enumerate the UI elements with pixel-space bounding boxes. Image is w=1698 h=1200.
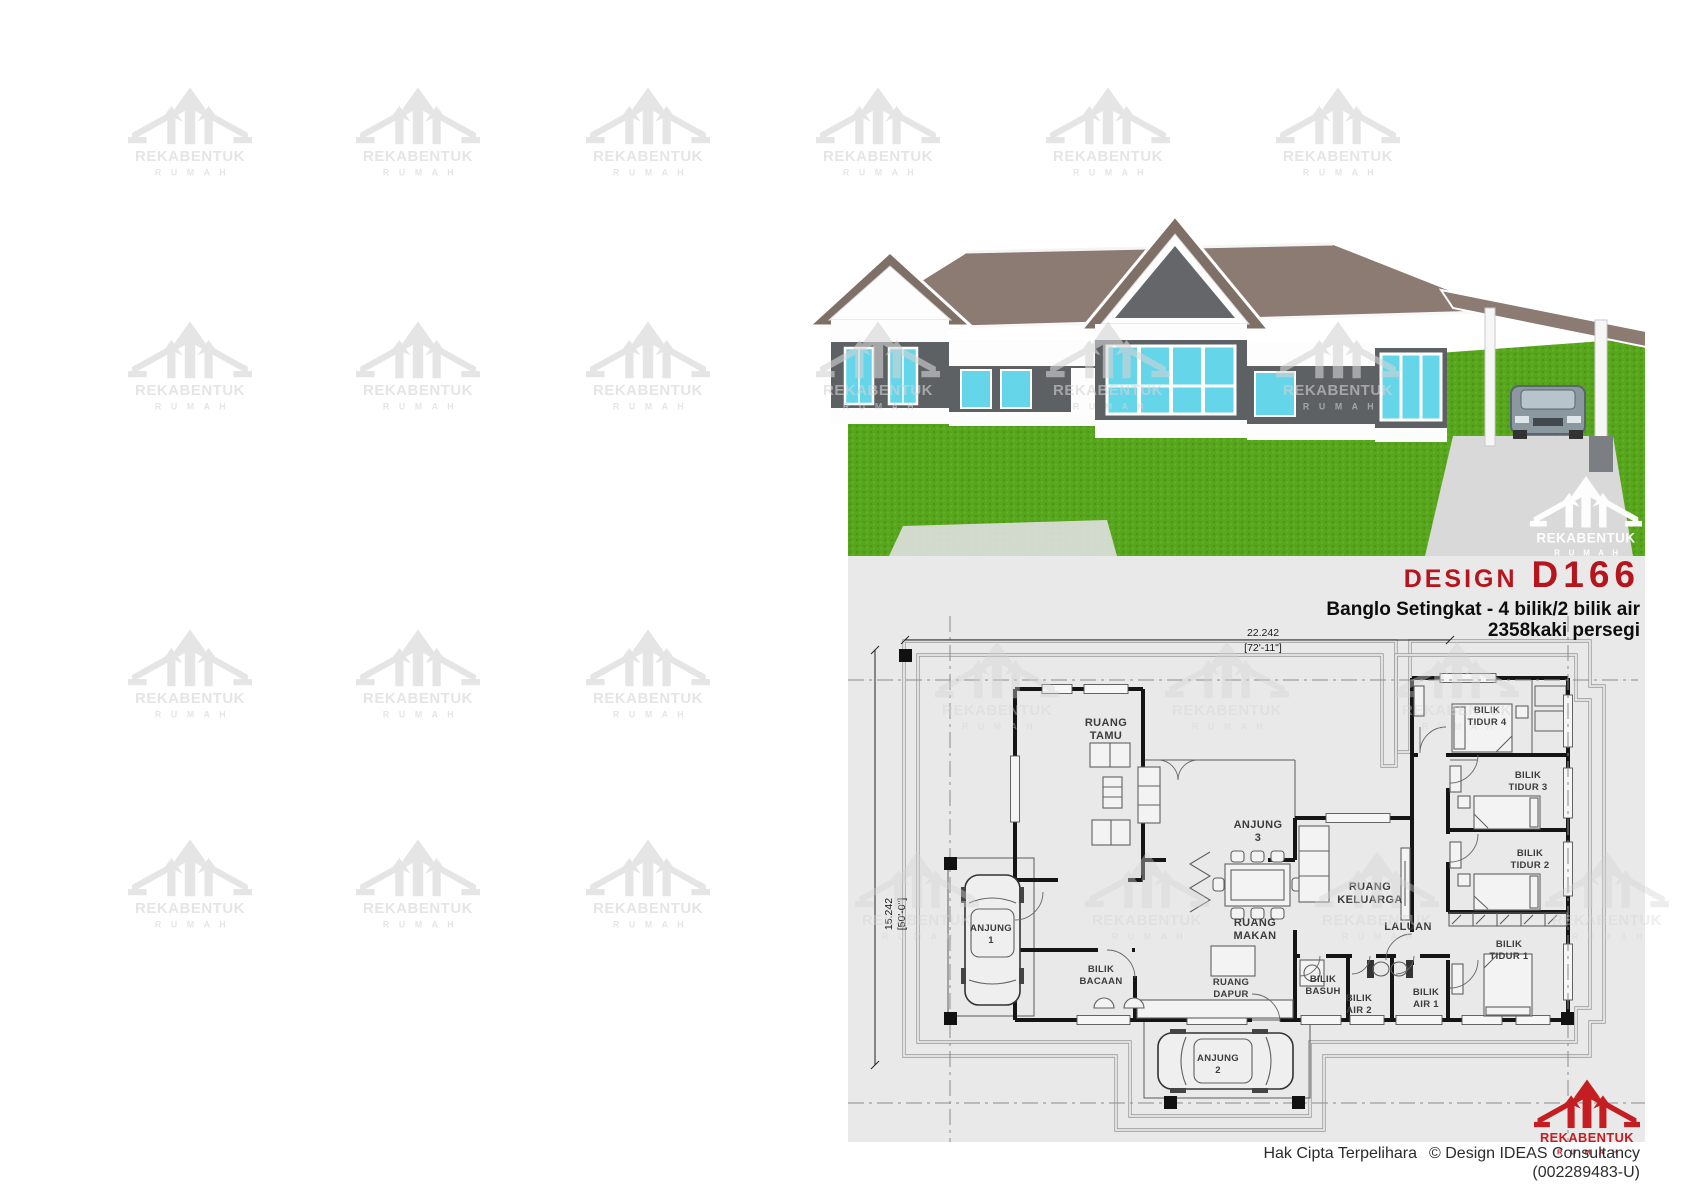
watermark-logo — [586, 616, 710, 723]
svg-text:22.242: 22.242 — [1247, 627, 1279, 639]
design-subtitle: Banglo Setingkat - 4 bilik/2 bilik air — [1326, 599, 1640, 620]
furniture — [961, 686, 1567, 1093]
label-laluan: LALUAN — [1384, 921, 1432, 933]
svg-text:15.242: 15.242 — [883, 898, 895, 930]
label-bilik-air-2: BILIK — [1346, 993, 1372, 1004]
watermark-logo — [586, 826, 710, 933]
house-3d-render — [785, 190, 1645, 556]
svg-text:1: 1 — [988, 935, 994, 946]
watermark-logo — [586, 308, 710, 415]
copyright-label: Hak Cipta Terpelihara — [1263, 1145, 1417, 1162]
company-name: © Design IDEAS Consultancy — [1429, 1145, 1640, 1162]
registration-number: (002289483-U) — [1263, 1163, 1640, 1182]
svg-text:[72'-11"]: [72'-11"] — [1244, 642, 1282, 654]
brand-logo-white — [1530, 464, 1642, 561]
house-right-wall — [1247, 342, 1447, 442]
label-ruang-keluarga: RUANG — [1349, 881, 1391, 893]
floor-plan: 22.242 [72'-11"] 15.242 [50'-0"] RUANG T… — [848, 556, 1645, 1142]
watermark-logo — [356, 308, 480, 415]
svg-text:2: 2 — [1215, 1065, 1221, 1076]
svg-text:KELUARGA: KELUARGA — [1337, 894, 1403, 906]
watermark-logo — [816, 74, 940, 181]
label-bilik-tidur-4: BILIK — [1474, 705, 1500, 716]
label-anjung-2: ANJUNG — [1197, 1053, 1239, 1064]
label-ruang-makan: RUANG — [1234, 917, 1276, 929]
svg-text:[50'-0"]: [50'-0"] — [896, 898, 908, 931]
label-bilik-tidur-1: BILIK — [1496, 939, 1522, 950]
svg-text:MAKAN: MAKAN — [1234, 930, 1277, 942]
svg-text:TAMU: TAMU — [1090, 730, 1123, 742]
svg-text:BASUH: BASUH — [1305, 986, 1340, 997]
svg-text:TIDUR 1: TIDUR 1 — [1489, 951, 1528, 962]
label-anjung-3: ANJUNG — [1234, 819, 1283, 831]
design-code: D166 — [1532, 554, 1640, 596]
svg-text:TIDUR 2: TIDUR 2 — [1510, 860, 1549, 871]
svg-text:DAPUR: DAPUR — [1213, 989, 1248, 1000]
house-center-wall — [949, 340, 1103, 426]
label-bilik-bacaan: BILIK — [1088, 964, 1114, 975]
watermark-logo — [356, 826, 480, 933]
svg-text:TIDUR 3: TIDUR 3 — [1508, 782, 1547, 793]
design-label: DESIGN — [1404, 565, 1518, 594]
car-front — [1511, 386, 1585, 439]
design-area: 2358kaki persegi — [1326, 620, 1640, 641]
label-bilik-air-1: BILIK — [1413, 987, 1439, 998]
brochure-page: DESIGN D166 Banglo Setingkat - 4 bilik/2… — [0, 0, 1698, 1200]
watermark-logo — [356, 74, 480, 181]
watermark-logo — [128, 826, 252, 933]
label-ruang-tamu: RUANG — [1085, 717, 1127, 729]
watermark-logo — [128, 74, 252, 181]
label-bilik-tidur-3: BILIK — [1515, 770, 1541, 781]
svg-text:BACAAN: BACAAN — [1080, 976, 1123, 987]
label-bilik-tidur-2: BILIK — [1517, 848, 1543, 859]
watermark-logo — [1046, 74, 1170, 181]
svg-text:TIDUR 4: TIDUR 4 — [1467, 717, 1506, 728]
watermark-logo — [356, 616, 480, 723]
watermark-logo — [1276, 74, 1400, 181]
svg-text:3: 3 — [1255, 832, 1262, 844]
svg-text:AIR 2: AIR 2 — [1346, 1005, 1372, 1016]
label-bilik-basuh: BILIK — [1310, 974, 1336, 985]
svg-text:AIR 1: AIR 1 — [1413, 999, 1439, 1010]
watermark-logo — [586, 74, 710, 181]
label-ruang-dapur: RUANG — [1213, 977, 1249, 988]
watermark-logo — [128, 308, 252, 415]
title-block: DESIGN D166 Banglo Setingkat - 4 bilik/2… — [1326, 554, 1640, 641]
footer: Hak Cipta Terpelihara© Design IDEAS Cons… — [1263, 1144, 1640, 1182]
label-anjung-1: ANJUNG — [970, 923, 1012, 934]
watermark-logo — [128, 616, 252, 723]
